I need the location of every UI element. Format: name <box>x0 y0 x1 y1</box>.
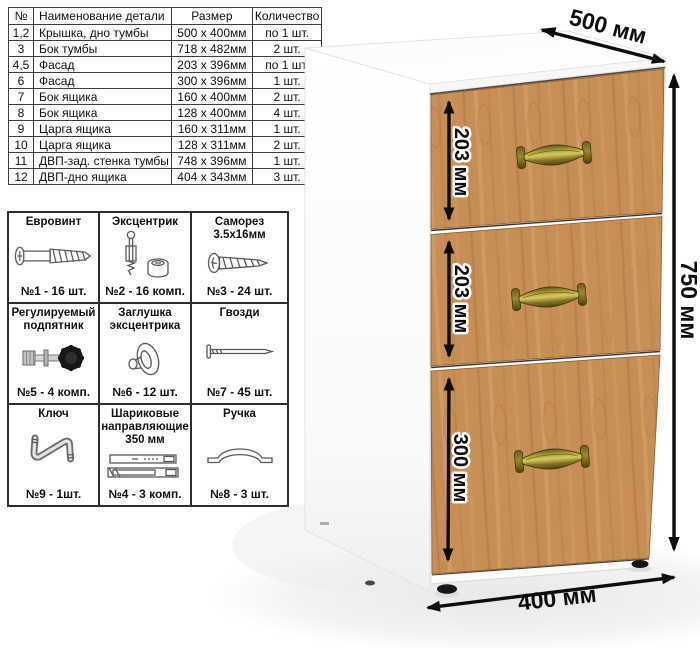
cabinet-illustration: 500 мм 750 мм 203 мм 203 мм 300 мм 400 м… <box>0 0 700 648</box>
cabinet-foot-right <box>632 560 649 568</box>
cabinet-foot-left <box>437 584 457 594</box>
drawer-1-height-label: 203 мм <box>450 128 472 197</box>
drawer-2-height-label: 203 мм <box>450 265 472 334</box>
drawer-3-height-label: 300 мм <box>449 434 471 503</box>
cabinet-foot-back <box>365 581 375 586</box>
cabinet-body <box>305 31 666 598</box>
cabinet-foot-hidden <box>320 522 329 525</box>
dim-height-label: 750 мм <box>676 261 700 340</box>
cabinet-left-side <box>305 48 430 592</box>
dim-height: 750 мм <box>668 73 700 552</box>
